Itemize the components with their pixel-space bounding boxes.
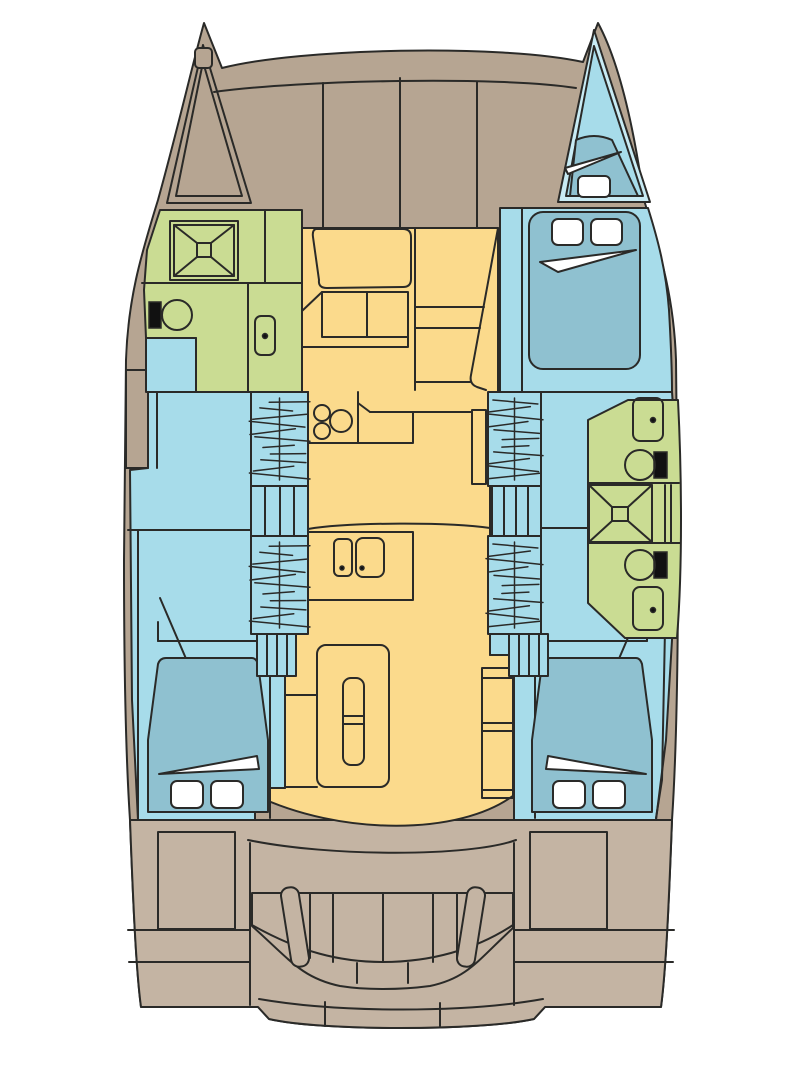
port-forward-berth-step (146, 338, 196, 392)
pillow (553, 781, 585, 808)
port-wardrobes (249, 392, 310, 676)
faucet (340, 566, 344, 570)
door-handle (651, 418, 656, 423)
door-handle (651, 608, 656, 613)
pillow (211, 781, 243, 808)
toilet-tank (149, 302, 161, 328)
deck-plan-image (0, 0, 805, 1080)
port-forward-bathroom (142, 210, 302, 392)
double-bed (529, 212, 640, 369)
starboard-forward-cabin (500, 208, 672, 392)
door-handle (263, 334, 268, 339)
starboard-bathroom (588, 398, 681, 638)
bathroom-floor (588, 400, 681, 638)
starboard-wardrobes (486, 392, 548, 676)
faucet (360, 566, 364, 570)
port-gunwale-shelf (126, 370, 148, 468)
pillow (593, 781, 625, 808)
pillow (552, 219, 583, 245)
anchor-well (195, 48, 212, 68)
hanger-line (269, 546, 310, 547)
port-aft-bed (148, 658, 268, 812)
pillow (591, 219, 622, 245)
catamaran-deck-plan (0, 0, 805, 1080)
pillow (171, 781, 203, 808)
hanger-line (269, 402, 310, 403)
pillow (578, 176, 610, 197)
